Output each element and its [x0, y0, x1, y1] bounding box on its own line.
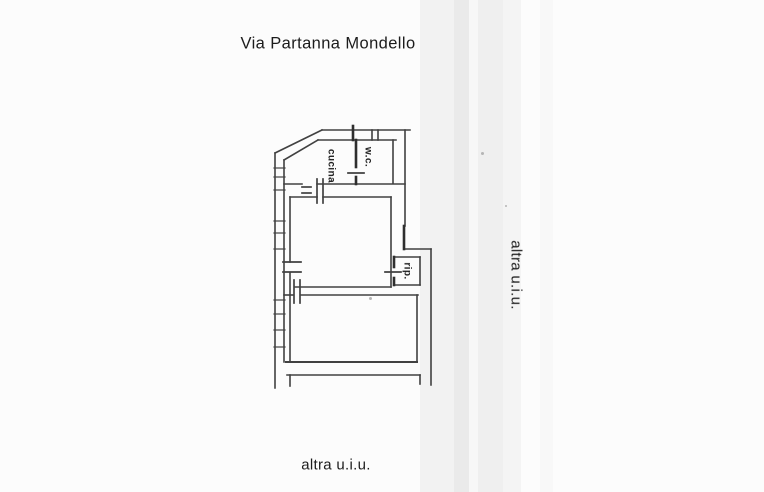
adjacent-unit-label-right: altra u.i.u.	[508, 240, 525, 309]
room-label-rip: rip.	[402, 262, 413, 279]
door-marks	[283, 173, 401, 303]
scanned-floorplan-page: Via Partanna Mondello cucina w.c. rip. a…	[0, 0, 764, 492]
room-label-wc: w.c.	[363, 147, 374, 167]
thick-wall-segments	[353, 126, 404, 285]
outer-walls	[275, 130, 431, 388]
interior-walls	[284, 130, 420, 386]
adjacent-unit-label-bottom: altra u.i.u.	[301, 457, 370, 474]
floor-plan-drawing	[0, 0, 764, 492]
room-label-cucina: cucina	[326, 149, 337, 183]
street-label: Via Partanna Mondello	[240, 35, 415, 54]
